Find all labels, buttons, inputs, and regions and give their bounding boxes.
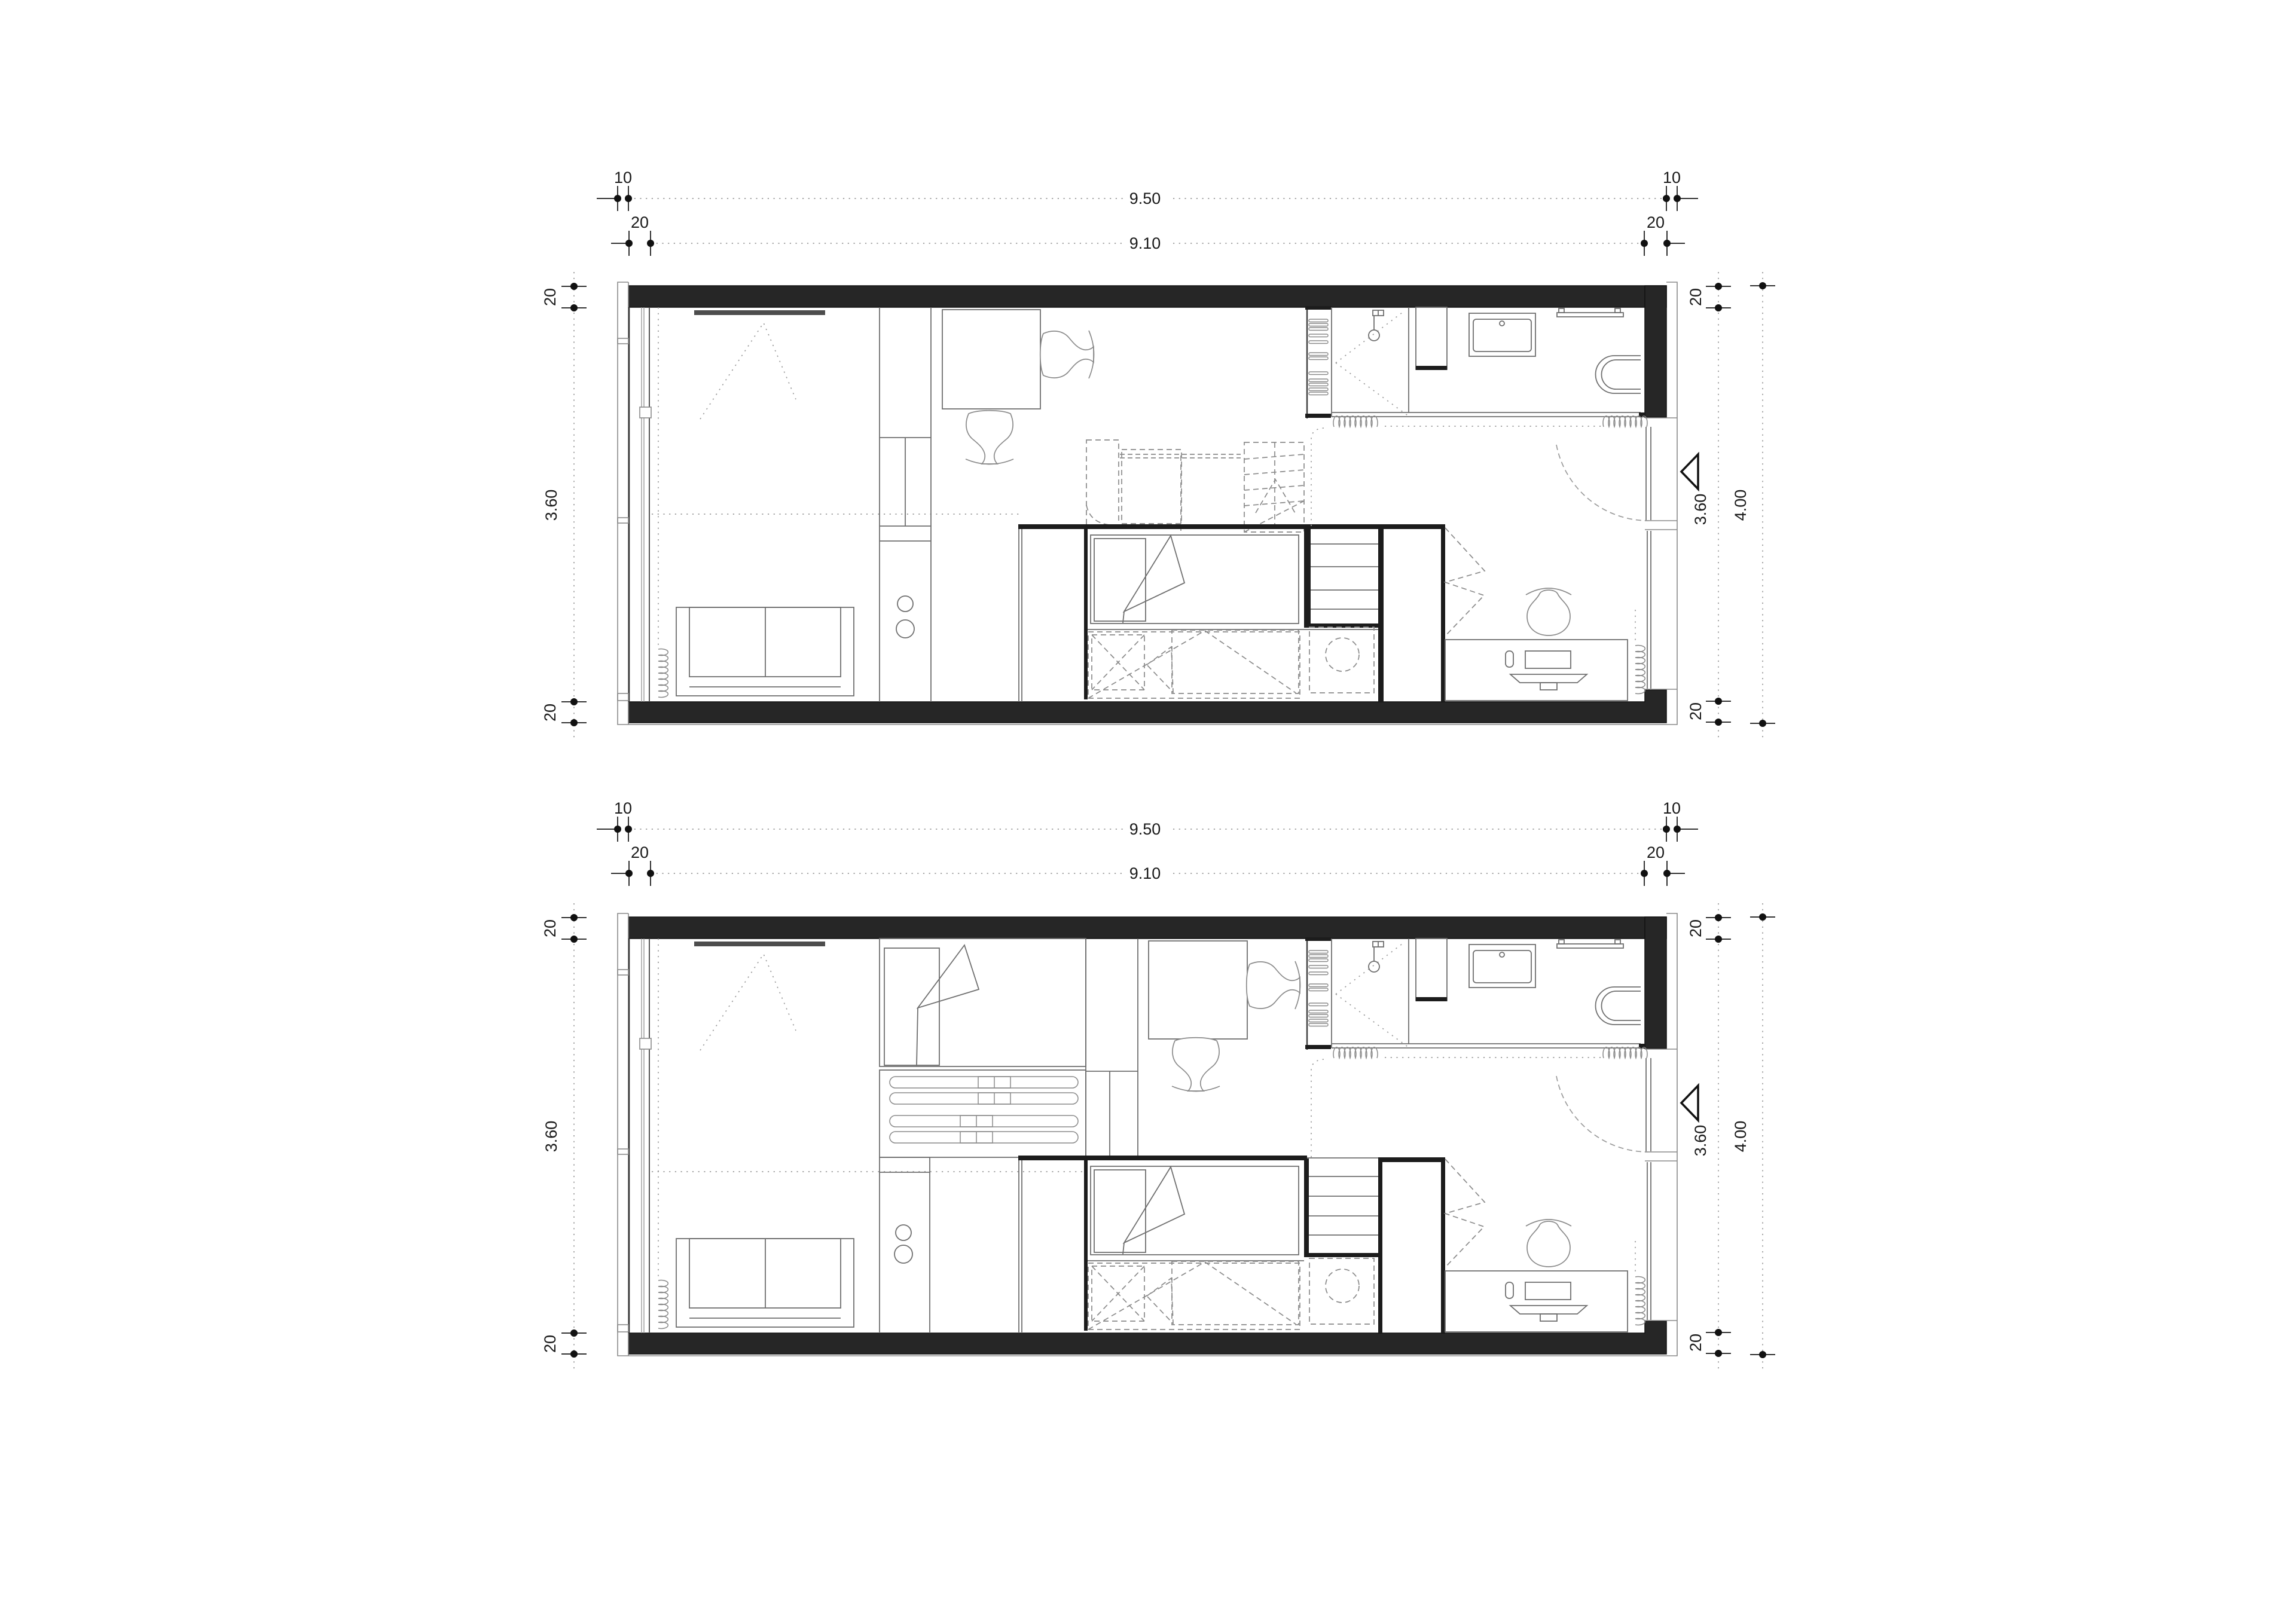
svg-text:20: 20 — [1687, 702, 1705, 720]
svg-text:20: 20 — [541, 1335, 559, 1353]
svg-text:10: 10 — [614, 799, 632, 817]
svg-text:20: 20 — [1687, 1334, 1705, 1352]
svg-text:3.60: 3.60 — [542, 490, 560, 521]
svg-text:20: 20 — [541, 704, 559, 722]
svg-text:10: 10 — [1663, 799, 1681, 817]
svg-text:20: 20 — [1647, 213, 1665, 231]
svg-text:10: 10 — [614, 169, 632, 187]
svg-text:4.00: 4.00 — [1732, 1121, 1750, 1153]
svg-text:4.00: 4.00 — [1732, 490, 1750, 521]
svg-text:9.50: 9.50 — [1129, 189, 1161, 207]
svg-text:20: 20 — [1687, 919, 1705, 937]
svg-text:3.60: 3.60 — [542, 1121, 560, 1153]
svg-text:20: 20 — [541, 919, 559, 937]
svg-text:20: 20 — [631, 843, 649, 861]
svg-text:10: 10 — [1663, 169, 1681, 187]
svg-text:9.10: 9.10 — [1129, 864, 1161, 882]
svg-text:3.60: 3.60 — [1692, 1125, 1709, 1157]
svg-text:20: 20 — [541, 288, 559, 306]
svg-text:20: 20 — [1647, 843, 1665, 861]
svg-text:20: 20 — [631, 213, 649, 231]
svg-text:9.10: 9.10 — [1129, 234, 1161, 252]
svg-text:20: 20 — [1687, 288, 1705, 306]
svg-text:9.50: 9.50 — [1129, 820, 1161, 838]
svg-text:3.60: 3.60 — [1692, 494, 1709, 525]
